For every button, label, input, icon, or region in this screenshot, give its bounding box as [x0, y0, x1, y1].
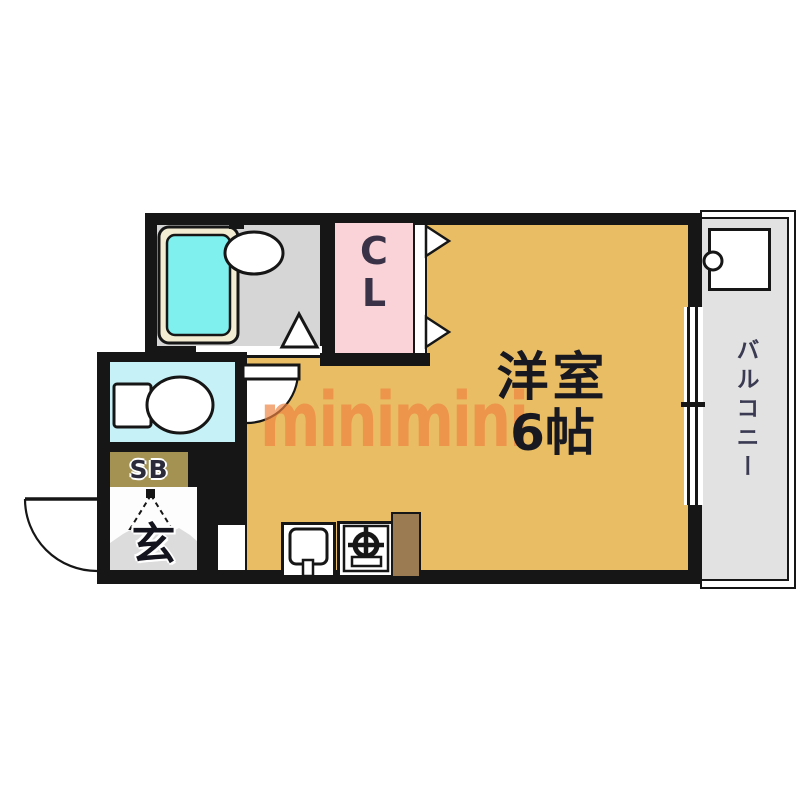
- washing-machine-pan: [708, 228, 771, 291]
- balcony-label: バルコニー: [700, 330, 790, 490]
- shoe-box-label: SB: [129, 455, 168, 484]
- gas-stove-unit: [337, 521, 395, 578]
- shoe-box: SB: [110, 452, 188, 487]
- closet-door-track: [413, 225, 427, 353]
- entrance-right-wall: [197, 487, 218, 577]
- kitchen-sink-unit: [281, 522, 336, 578]
- floor-plan: バルコニー C L SB: [0, 0, 800, 800]
- closet-label: C L: [335, 230, 413, 314]
- main-room-label: 洋室 6帖: [440, 350, 665, 460]
- main-room-size: 6帖: [440, 406, 665, 460]
- window-latch-tick: [681, 402, 705, 407]
- main-room-name: 洋室: [440, 350, 665, 406]
- bathroom-floor: [157, 225, 320, 346]
- kitchen-counter-wood: [391, 512, 421, 578]
- toilet-room-floor: [110, 362, 235, 442]
- utility-niche: [218, 523, 247, 570]
- entrance-door-arc: [25, 499, 97, 571]
- closet-bottom-wall: [320, 353, 430, 366]
- entrance-label: 玄: [110, 508, 197, 572]
